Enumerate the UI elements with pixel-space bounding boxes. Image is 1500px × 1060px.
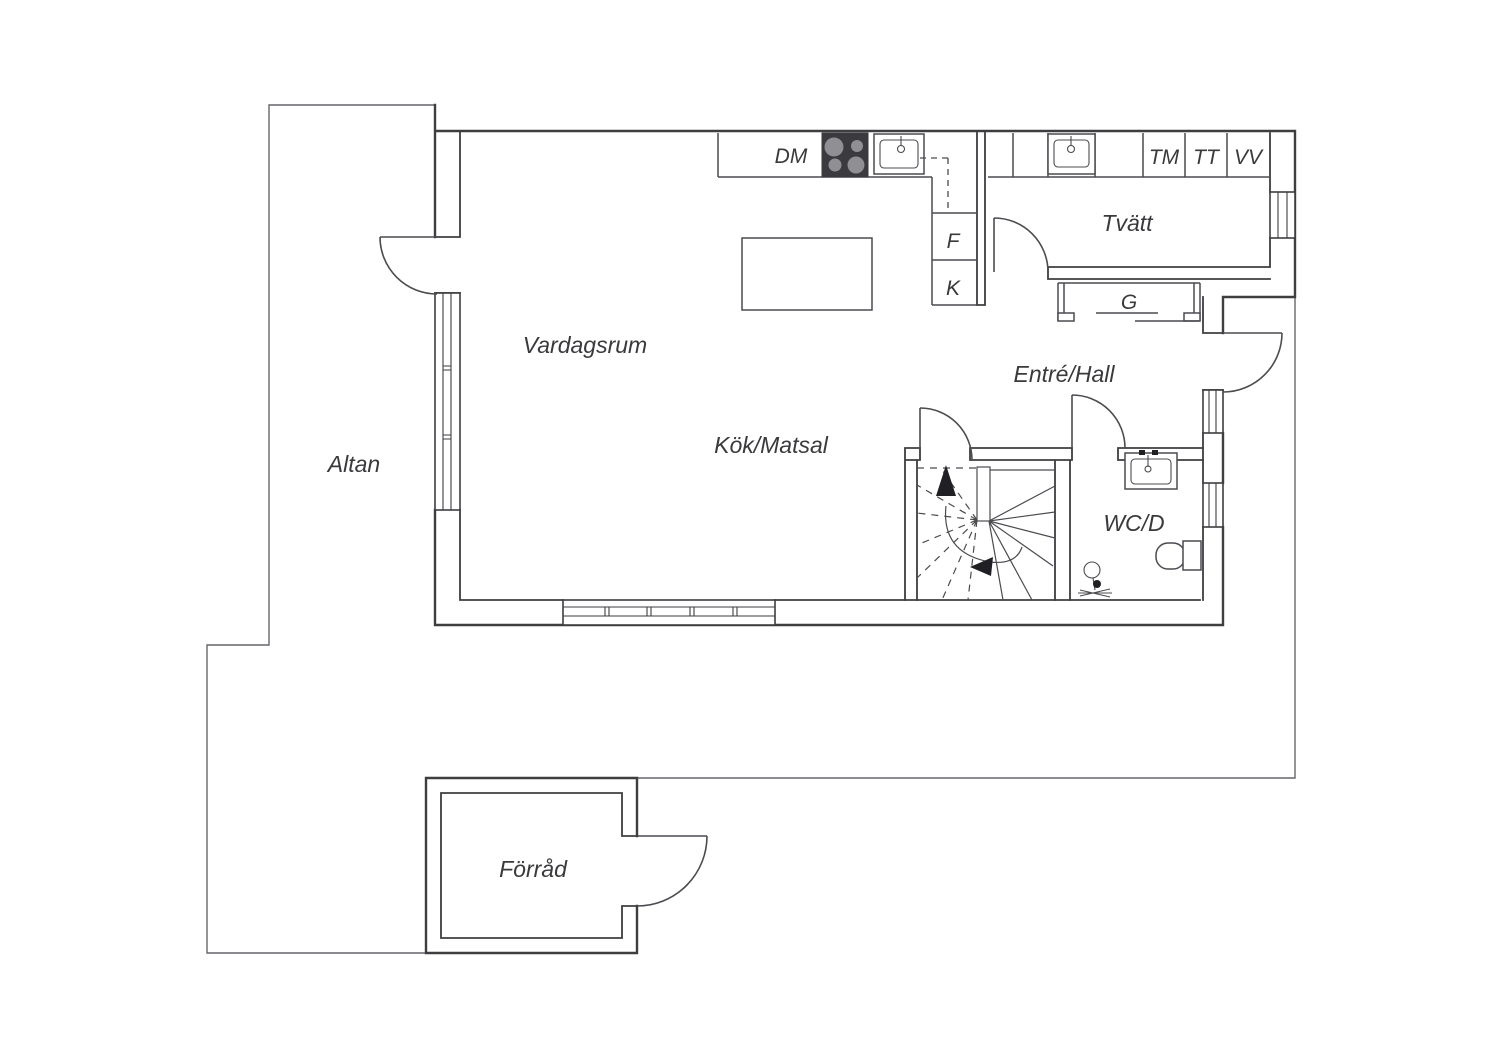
burner bbox=[848, 157, 865, 174]
toilet bbox=[1156, 541, 1201, 570]
stove bbox=[822, 133, 868, 177]
laundry-sink bbox=[1048, 134, 1095, 174]
closet-foot bbox=[1058, 313, 1074, 321]
kitchen bbox=[718, 133, 977, 310]
appliance-label-k: K bbox=[946, 277, 961, 300]
storage-door bbox=[637, 836, 707, 906]
laundry-counter bbox=[988, 133, 1270, 177]
appliance-label-tm: TM bbox=[1149, 146, 1180, 169]
terrace-door bbox=[380, 237, 437, 294]
appliance-label-dm: DM bbox=[775, 145, 808, 168]
burner bbox=[851, 140, 863, 152]
stair-treads bbox=[989, 470, 1055, 600]
burner bbox=[829, 159, 842, 172]
laundry-door bbox=[994, 218, 1048, 272]
appliance-label-vv: VV bbox=[1234, 146, 1264, 169]
room-label-forrad: Förråd bbox=[499, 856, 568, 882]
floor-plan: Altan Vardagsrum Kök/Matsal Entré/Hall T… bbox=[0, 0, 1500, 1060]
closet-foot bbox=[1184, 313, 1200, 321]
shower-drain bbox=[1078, 562, 1112, 597]
hall-window bbox=[1203, 390, 1223, 433]
south-window bbox=[563, 600, 775, 625]
kitchen-sink bbox=[874, 134, 924, 174]
appliance-label-tt: TT bbox=[1193, 146, 1221, 169]
kitchen-island bbox=[742, 238, 872, 310]
room-label-vardagsrum: Vardagsrum bbox=[523, 332, 647, 358]
bathroom-window bbox=[1203, 483, 1223, 527]
stair-newel bbox=[977, 467, 990, 521]
front-door bbox=[1223, 333, 1282, 392]
closet-label-g: G bbox=[1121, 291, 1137, 314]
room-label-wc-d: WC/D bbox=[1103, 510, 1164, 536]
laundry-window bbox=[1270, 192, 1295, 238]
stair-walk-line bbox=[946, 506, 1022, 562]
staircase bbox=[917, 465, 1055, 600]
burner bbox=[825, 138, 844, 157]
stair-door bbox=[920, 408, 972, 460]
laundry bbox=[988, 133, 1270, 177]
appliance-label-f: F bbox=[947, 230, 961, 253]
washbasin bbox=[1125, 450, 1177, 489]
room-label-tvatt: Tvätt bbox=[1101, 210, 1154, 236]
room-label-kok-matsal: Kök/Matsal bbox=[714, 432, 829, 458]
room-label-altan: Altan bbox=[326, 451, 380, 477]
bathroom-door bbox=[1072, 395, 1125, 448]
stair-up-arrow bbox=[936, 465, 956, 496]
room-label-entre-hall: Entré/Hall bbox=[1014, 361, 1116, 387]
living-room-window bbox=[435, 293, 460, 510]
